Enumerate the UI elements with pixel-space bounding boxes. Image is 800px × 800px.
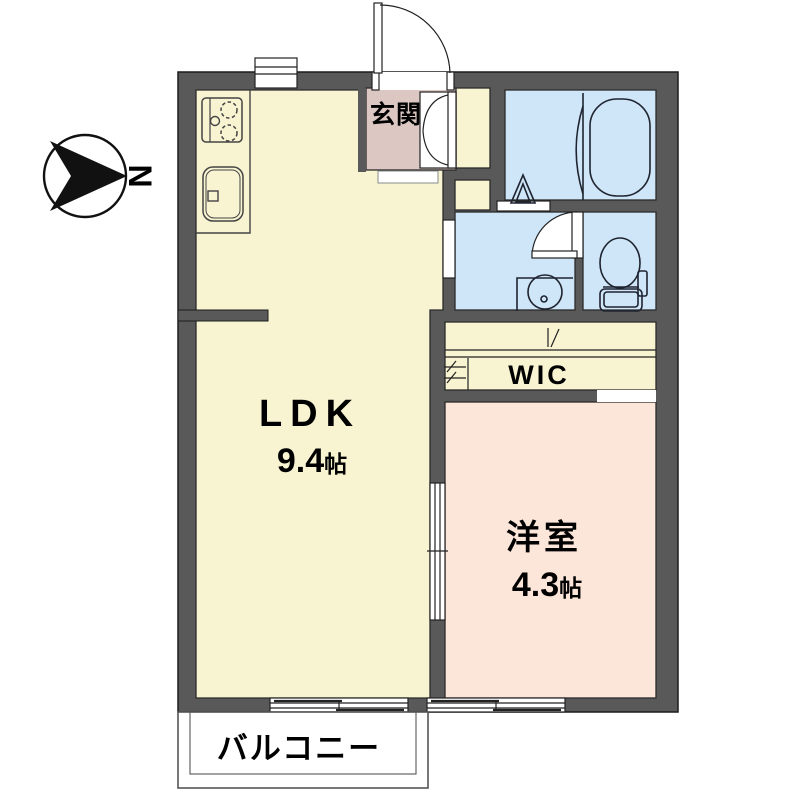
- western-room-label: 洋室: [506, 518, 582, 557]
- window-icon-western: [427, 698, 565, 712]
- wic-label: WIC: [508, 360, 569, 390]
- corridor-strip: [456, 88, 490, 168]
- wall-stub: [178, 310, 268, 321]
- shoe-closet-icon: [420, 92, 456, 168]
- corridor-cell: [455, 180, 490, 210]
- balcony-label: バルコニー: [217, 731, 381, 766]
- wall-entrance-left: [358, 88, 366, 172]
- ldk-label: LDK: [259, 393, 361, 435]
- window-icon: [255, 58, 297, 88]
- western-room-doorway: [597, 390, 656, 402]
- entrance-step: [378, 171, 438, 183]
- floor-plan-page: N 玄関 LDK 9.4帖 洋室 4.3帖 WIC バルコニー: [0, 0, 800, 800]
- floor-plan-svg: N 玄関 LDK 9.4帖 洋室 4.3帖 WIC バルコニー: [0, 0, 800, 800]
- washroom-doorway: [443, 220, 455, 278]
- sliding-door-icon: [427, 483, 448, 620]
- entrance-label: 玄関: [370, 100, 422, 129]
- window-icon-ldk: [270, 698, 408, 712]
- compass-north-label: N: [122, 164, 158, 187]
